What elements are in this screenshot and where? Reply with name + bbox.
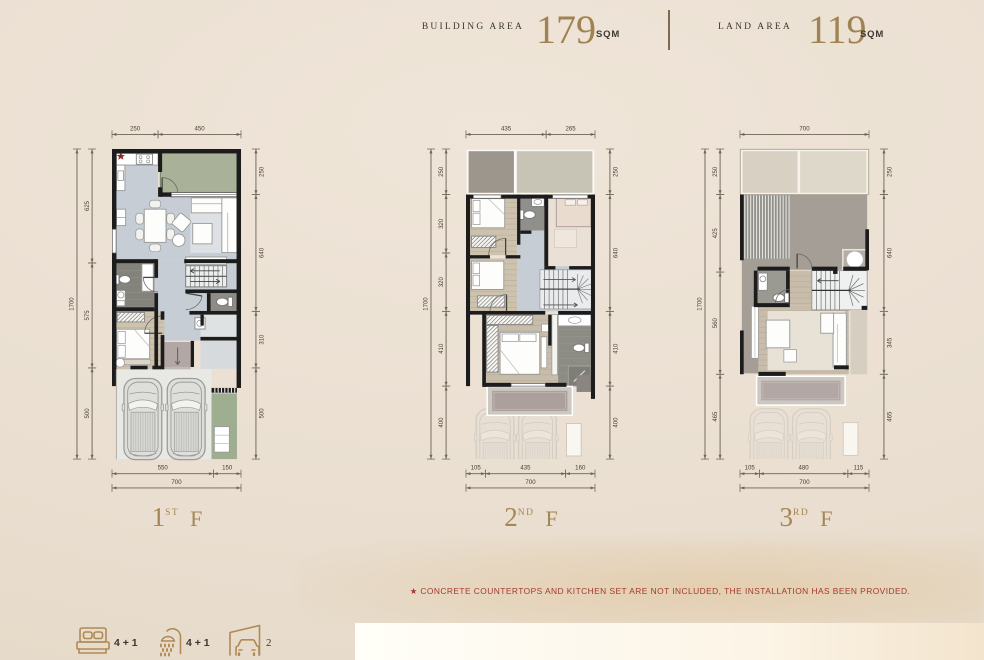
svg-text:4 + 1: 4 + 1 bbox=[186, 637, 210, 649]
svg-text:1700: 1700 bbox=[698, 297, 704, 311]
svg-text:105: 105 bbox=[745, 466, 756, 472]
svg-text:550: 550 bbox=[158, 466, 169, 472]
svg-text:480: 480 bbox=[799, 466, 810, 472]
svg-text:435: 435 bbox=[501, 126, 512, 132]
svg-text:410: 410 bbox=[613, 343, 619, 354]
svg-text:105: 105 bbox=[471, 466, 482, 472]
svg-text:265: 265 bbox=[566, 126, 577, 132]
svg-text:700: 700 bbox=[799, 126, 810, 132]
svg-text:320: 320 bbox=[439, 218, 445, 229]
svg-text:640: 640 bbox=[613, 247, 619, 258]
svg-text:250: 250 bbox=[613, 166, 619, 177]
svg-text:320: 320 bbox=[439, 277, 445, 288]
svg-text:160: 160 bbox=[575, 466, 586, 472]
svg-text:250: 250 bbox=[713, 166, 719, 177]
svg-text:150: 150 bbox=[222, 466, 233, 472]
svg-text:640: 640 bbox=[887, 247, 893, 258]
svg-text:400: 400 bbox=[439, 417, 445, 428]
svg-text:465: 465 bbox=[887, 411, 893, 422]
svg-text:310: 310 bbox=[259, 334, 265, 345]
svg-text:410: 410 bbox=[439, 343, 445, 354]
svg-text:1700: 1700 bbox=[424, 297, 430, 311]
svg-text:250: 250 bbox=[439, 166, 445, 177]
svg-text:4 + 1: 4 + 1 bbox=[114, 637, 138, 649]
svg-text:2: 2 bbox=[266, 637, 272, 649]
svg-text:575: 575 bbox=[85, 310, 91, 321]
svg-text:435: 435 bbox=[520, 466, 531, 472]
svg-text:450: 450 bbox=[194, 126, 205, 132]
svg-text:250: 250 bbox=[130, 126, 141, 132]
svg-text:465: 465 bbox=[713, 411, 719, 422]
svg-text:500: 500 bbox=[259, 408, 265, 419]
svg-text:625: 625 bbox=[85, 200, 91, 211]
svg-text:700: 700 bbox=[525, 480, 536, 486]
svg-text:250: 250 bbox=[259, 166, 265, 177]
svg-text:500: 500 bbox=[85, 408, 91, 419]
svg-text:345: 345 bbox=[887, 337, 893, 348]
svg-text:400: 400 bbox=[613, 417, 619, 428]
svg-text:425: 425 bbox=[713, 228, 719, 239]
svg-text:700: 700 bbox=[171, 480, 182, 486]
svg-text:115: 115 bbox=[854, 466, 864, 472]
svg-text:640: 640 bbox=[259, 247, 265, 258]
svg-text:560: 560 bbox=[713, 318, 719, 329]
svg-text:1700: 1700 bbox=[70, 297, 76, 311]
svg-text:250: 250 bbox=[887, 166, 893, 177]
svg-text:700: 700 bbox=[799, 480, 810, 486]
